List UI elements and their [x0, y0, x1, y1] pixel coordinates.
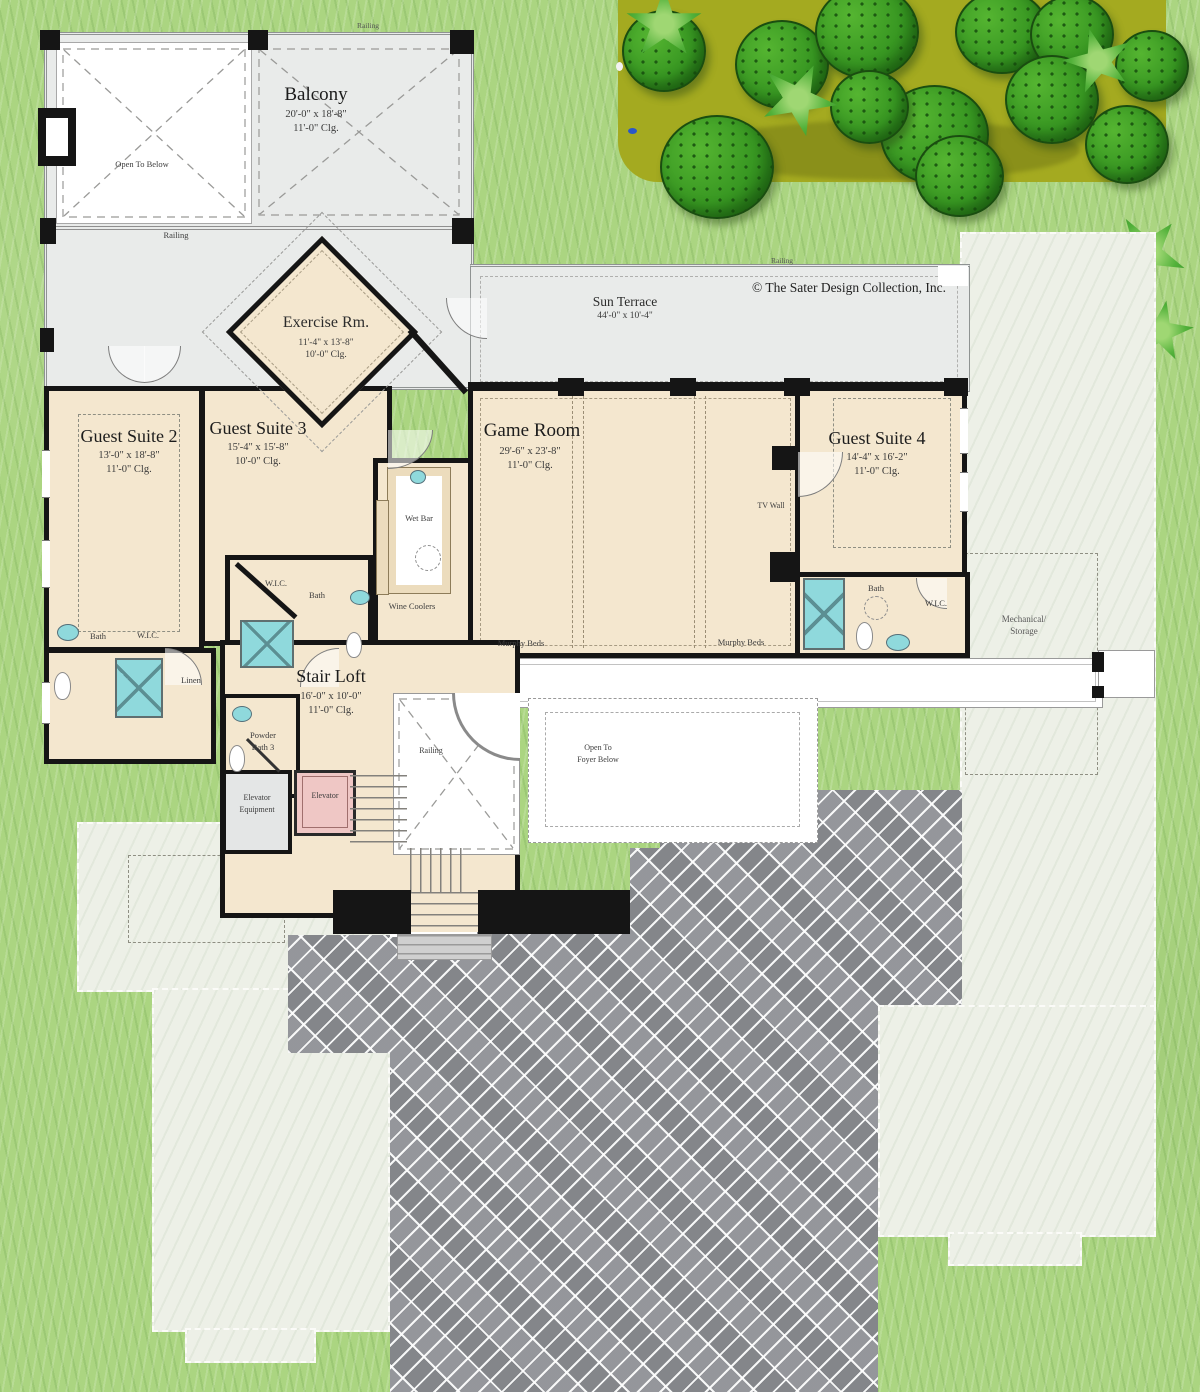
wine-cooler-circle — [415, 545, 441, 571]
bird-icon — [616, 62, 623, 71]
tub-circle — [864, 596, 888, 620]
deck-railing-label: Railing — [163, 231, 188, 241]
tv-wall-stub — [772, 446, 798, 470]
balcony-clg: 11'-0" Clg. — [293, 123, 338, 135]
tv-wall-stub — [770, 552, 800, 582]
mechanical-label-1: Mechanical/ — [1002, 614, 1046, 624]
column — [40, 218, 56, 244]
guest2-clg: 11'-0" Clg. — [106, 464, 151, 476]
column — [248, 30, 268, 50]
murphy-beds-label: Murphy Beds — [718, 638, 765, 648]
open-to-below-label: Open To Below — [115, 160, 169, 170]
foyer-opening-inner — [545, 712, 800, 827]
roof-area-left-step — [185, 1328, 316, 1363]
guest3-wic-label: W.I.C. — [265, 579, 287, 589]
column — [784, 378, 810, 396]
column — [450, 30, 474, 54]
stair-railing-label: Railing — [419, 746, 443, 755]
shower-icon — [803, 578, 845, 650]
entry-wall-right — [478, 890, 630, 934]
guest2-label: Guest Suite 2 — [81, 426, 178, 447]
roof-area-right-lower — [878, 1005, 1156, 1237]
window — [960, 472, 968, 512]
powder-bath-label-1: Powder — [250, 731, 276, 741]
exterior-steps — [397, 934, 492, 960]
wine-coolers-label: Wine Coolers — [389, 602, 436, 612]
window — [42, 540, 50, 588]
balcony-dim: 20'-0" x 18'-8" — [285, 109, 346, 121]
side-porch-wall — [1092, 686, 1104, 698]
shower-icon — [240, 620, 294, 668]
house-top-wall — [468, 382, 968, 391]
shrub — [1115, 30, 1189, 102]
exercise-clg: 10'-0" Clg. — [305, 350, 346, 361]
guest3-clg: 10'-0" Clg. — [235, 456, 281, 468]
guest2-bath-label: Bath — [90, 632, 106, 642]
sink-icon — [232, 706, 252, 722]
column — [944, 378, 968, 396]
copyright-text: © The Sater Design Collection, Inc. — [752, 280, 946, 296]
guest4-dim: 14'-4" x 16'-2" — [846, 452, 907, 464]
toilet-icon — [54, 672, 71, 700]
roof-area-right-step — [948, 1232, 1082, 1266]
bird-icon — [628, 128, 637, 134]
sink-icon — [57, 624, 79, 641]
open-to-foyer-label-2: Foyer Below — [577, 755, 619, 764]
railing-label: Railing — [357, 22, 379, 31]
elev-equip-label-2: Equipment — [239, 805, 274, 814]
wet-bar-cabinet — [376, 500, 389, 595]
game-room-dim: 29'-6" x 23'-8" — [499, 446, 560, 458]
side-porch — [1098, 650, 1155, 698]
murphy-beds-label: Murphy Beds — [498, 639, 545, 649]
stair-loft-dim: 16'-0" x 10'-0" — [300, 691, 361, 703]
guest4-bath-label: Bath — [868, 584, 884, 594]
shower-icon — [115, 658, 163, 718]
entry-wall-left — [333, 890, 411, 934]
floor-plan-scene: Railing Open To Below Balcony 20'-0" x 1… — [0, 0, 1200, 1392]
window — [42, 450, 50, 498]
toilet-icon — [346, 632, 362, 658]
guest3-label: Guest Suite 3 — [210, 418, 307, 439]
guest4-label: Guest Suite 4 — [829, 428, 926, 449]
wet-bar-label: Wet Bar — [405, 514, 433, 524]
toilet-icon — [856, 622, 873, 650]
open-to-below-xmark-icon — [56, 42, 252, 224]
guest2-wic-label: W.I.C. — [137, 631, 159, 641]
shrub — [660, 115, 774, 219]
open-to-foyer-label-1: Open To — [584, 743, 612, 752]
linen-label: Linen — [181, 676, 201, 686]
toilet-icon — [229, 745, 245, 772]
stair-treads-upper — [350, 775, 407, 845]
deck-railing-line — [56, 226, 466, 230]
entry-steps — [411, 892, 478, 932]
balcony-xmark-icon — [252, 42, 466, 222]
column — [558, 378, 584, 396]
window — [960, 408, 968, 454]
shrub — [830, 70, 909, 144]
guest-suite-2-bed-outline — [78, 414, 180, 632]
chimney-flue — [46, 118, 68, 156]
guest4-wic-label: W.I.C. — [925, 599, 947, 609]
shrub — [915, 135, 1004, 217]
wet-bar-counter — [388, 468, 450, 593]
tv-wall-label: TV Wall — [757, 501, 784, 510]
shrub — [1005, 55, 1099, 144]
shrub — [1085, 105, 1169, 184]
window — [42, 682, 50, 724]
bar-sink-icon — [410, 470, 426, 484]
lower-roof-ledge-line — [465, 664, 1096, 702]
guest2-dim: 13'-0" x 18'-8" — [98, 450, 159, 462]
column — [670, 378, 696, 396]
guest4-clg: 11'-0" Clg. — [854, 466, 899, 478]
guest3-dim: 15'-4" x 15'-8" — [227, 442, 288, 454]
mechanical-label-2: Storage — [1010, 626, 1038, 636]
elev-equip-label-1: Elevator — [243, 793, 270, 802]
guest3-bath-label: Bath — [309, 591, 325, 601]
exercise-label: Exercise Rm. — [283, 314, 369, 332]
elevator-cab-inner — [302, 776, 348, 828]
sink-icon — [350, 590, 370, 605]
murphy-bed-closet-line — [694, 396, 706, 648]
terrace-railing-label: Railing — [771, 257, 793, 266]
sun-terrace-label: Sun Terrace — [593, 294, 657, 310]
column — [40, 30, 60, 50]
stair-loft-clg: 11'-0" Clg. — [308, 705, 353, 717]
game-room-label: Game Room — [484, 420, 581, 442]
sun-terrace-dim: 44'-0" x 10'-4" — [597, 311, 653, 322]
balcony-label: Balcony — [284, 84, 347, 106]
elevator-label: Elevator — [311, 791, 338, 800]
powder-bath-label-2: Bath 3 — [252, 743, 274, 753]
column — [452, 218, 474, 244]
stair-loft-label: Stair Loft — [296, 666, 366, 687]
column — [40, 328, 54, 352]
exercise-dim: 11'-4" x 13'-8" — [298, 338, 353, 349]
side-porch-wall — [1092, 652, 1104, 672]
game-room-clg: 11'-0" Clg. — [507, 460, 552, 472]
sink-icon — [886, 634, 910, 651]
